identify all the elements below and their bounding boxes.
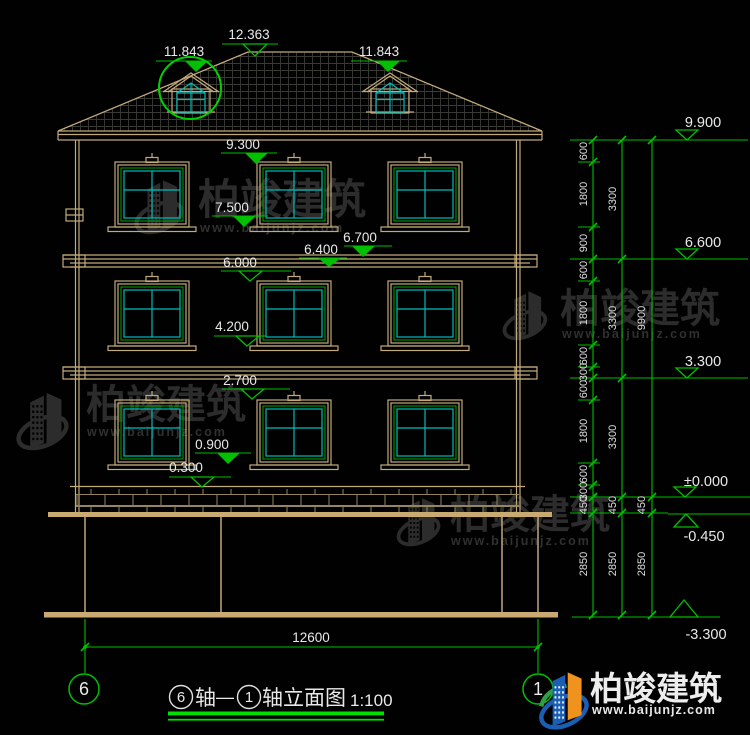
dim-label: 1800 xyxy=(578,301,590,325)
ground-floor-slab xyxy=(48,512,552,517)
band-end-cap xyxy=(63,367,85,379)
brick-band xyxy=(76,489,519,512)
axis-number: 1 xyxy=(533,679,543,699)
title-underline-thick xyxy=(168,712,384,716)
elevation-label: 9.300 xyxy=(226,137,260,152)
elevation-label: 3.300 xyxy=(685,354,721,370)
chain3-labels: 9900 450 2850 xyxy=(636,306,648,576)
elevation-label: -0.450 xyxy=(683,529,724,545)
logo-brand-text: 柏竣建筑 xyxy=(590,670,722,707)
title-scale: 1:100 xyxy=(350,691,393,710)
watermark-url: www.baijunjz.com xyxy=(450,534,591,548)
logo-url-text: www.baijunjz.com xyxy=(591,703,716,717)
dim-label: 1800 xyxy=(578,182,590,206)
watermark-brand: 柏竣建筑 xyxy=(86,383,246,427)
drawing-canvas: 柏竣建筑 www.baijunjz.com 柏竣建筑 www.baijunjz.… xyxy=(0,0,750,735)
overall-dim-line xyxy=(85,619,538,673)
window xyxy=(108,272,196,351)
elevation-label: -3.300 xyxy=(685,627,726,643)
eave-fascia xyxy=(58,131,542,140)
watermark-building-icon xyxy=(501,291,549,343)
chain1-labels: 600 1800 900 600 1800 600 300 600 1800 6… xyxy=(578,142,590,576)
right-dimension-chains: 600 1800 900 600 1800 600 300 600 1800 6… xyxy=(570,115,750,643)
brand-logo: 柏竣建筑 www.baijunjz.com xyxy=(536,670,722,734)
elevation-label: 11.843 xyxy=(164,44,204,59)
window xyxy=(381,391,469,470)
dim-label: 450 xyxy=(636,496,648,514)
dim-label: 900 xyxy=(578,234,590,252)
band-end-cap xyxy=(515,255,537,267)
dim-label: 600 xyxy=(578,380,590,398)
window xyxy=(250,272,338,351)
window xyxy=(381,272,469,351)
dim-label: 1800 xyxy=(578,419,590,443)
dim-label: 3300 xyxy=(607,425,619,449)
floor-band-2f xyxy=(63,367,537,379)
title-underline-thin xyxy=(168,719,384,721)
drawing-title: 6 轴 — 1 轴立面图 1:100 xyxy=(168,686,393,721)
watermark-building-icon xyxy=(14,393,71,454)
dim-label: 600 xyxy=(578,261,590,279)
band-end-cap xyxy=(63,255,85,267)
elevation-label: 4.200 xyxy=(215,319,249,334)
elevation-label: 6.400 xyxy=(304,242,338,257)
title-axis-number: 1 xyxy=(245,689,253,706)
elevation-label: 0.900 xyxy=(195,437,229,452)
elevation-marker: 9.300 xyxy=(221,137,277,164)
elevation-marker: 11.843 xyxy=(156,44,212,72)
elevation-label: 12.363 xyxy=(228,27,269,42)
elevation-label: 2.700 xyxy=(223,373,257,388)
elevation-label: 9.900 xyxy=(685,115,721,131)
dim-label: 300 xyxy=(578,363,590,381)
title-text: 轴 xyxy=(195,687,216,710)
dim-label: 450 xyxy=(578,496,590,514)
elevation-label: 6.600 xyxy=(685,235,721,251)
dim-label: 600 xyxy=(578,347,590,365)
dim-label: 9900 xyxy=(636,306,648,330)
elevation-label: 7.500 xyxy=(215,200,249,215)
cad-elevation-drawing: 柏竣建筑 www.baijunjz.com 柏竣建筑 www.baijunjz.… xyxy=(0,0,750,735)
right-elevation-markers: 9.900 6.600 3.300 ±0.000 -0.450 -3.300 xyxy=(572,115,750,643)
elevation-label: 11.843 xyxy=(359,44,399,59)
elevation-marker: 6.700 xyxy=(343,230,392,257)
floor-band-3f xyxy=(63,255,537,267)
elevation-marker: 0.300 xyxy=(169,460,231,487)
dim-label: 600 xyxy=(578,142,590,160)
window xyxy=(250,391,338,470)
dim-label: 2850 xyxy=(578,552,590,576)
elevation-label: ±0.000 xyxy=(684,474,728,490)
elevation-marker: 4.200 xyxy=(214,319,266,346)
elevation-label: 6.000 xyxy=(223,255,257,270)
axis-number: 6 xyxy=(79,679,89,699)
watermark-building-icon xyxy=(132,180,186,238)
band-end-cap xyxy=(515,367,537,379)
watermark-url: www.baijunjz.com xyxy=(561,327,702,341)
elevation-label: 0.300 xyxy=(169,460,203,475)
hip-roof xyxy=(58,52,542,131)
title-text: 轴立面图 xyxy=(262,687,346,710)
dim-label: 3300 xyxy=(607,187,619,211)
elevation-label: 6.700 xyxy=(343,230,377,245)
dim-label: 600 xyxy=(578,465,590,483)
dim-label: 2850 xyxy=(636,552,648,576)
window xyxy=(108,391,196,470)
title-axis-number: 6 xyxy=(177,689,185,706)
window xyxy=(381,153,469,232)
dim-label: 3300 xyxy=(607,306,619,330)
elevation-marker: 0.900 xyxy=(195,437,251,464)
dim-label: 450 xyxy=(607,496,619,514)
overall-dim-label: 12600 xyxy=(292,630,330,645)
ground-line xyxy=(44,612,558,618)
dim-label: 2850 xyxy=(607,552,619,576)
title-dash: — xyxy=(216,687,234,707)
